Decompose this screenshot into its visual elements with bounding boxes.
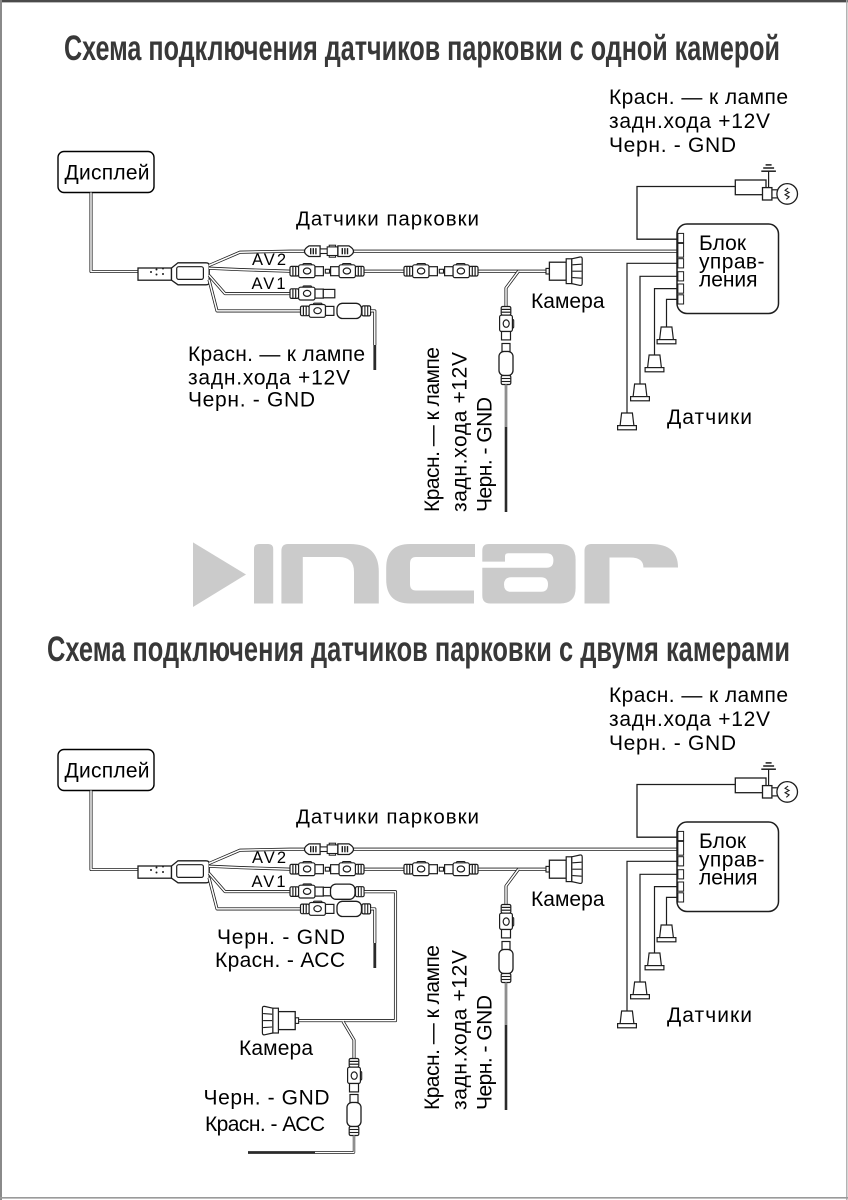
svg-text:Красн. - АСС: Красн. - АСС — [205, 1113, 325, 1136]
svg-text:Красн. — к лампе: Красн. — к лампе — [421, 347, 444, 512]
svg-text:Схема подключения датчиков пар: Схема подключения датчиков парковки с од… — [64, 29, 780, 68]
svg-text:Датчики парковки: Датчики парковки — [296, 208, 479, 231]
svg-text:Красн. — к лампе: Красн. — к лампе — [188, 343, 365, 366]
svg-text:Черн. - GND: Черн. - GND — [204, 1086, 330, 1109]
svg-text:Камера: Камера — [531, 290, 605, 313]
svg-text:задн.хода +12V: задн.хода +12V — [449, 352, 472, 512]
svg-text:задн.хода +12V: задн.хода +12V — [188, 367, 350, 390]
svg-text:Дисплей: Дисплей — [65, 162, 150, 185]
svg-text:AV1: AV1 — [252, 275, 286, 293]
svg-text:Красн. — к лампе: Красн. — к лампе — [609, 86, 788, 109]
svg-text:ления: ления — [699, 269, 758, 292]
svg-text:AV2: AV2 — [252, 251, 286, 269]
svg-text:Черн. - GND: Черн. - GND — [217, 926, 345, 949]
svg-text:задн.хода +12V: задн.хода +12V — [609, 110, 770, 133]
svg-text:Схема подключения датчиков пар: Схема подключения датчиков парковки с дв… — [47, 630, 790, 669]
svg-text:Черн. - GND: Черн. - GND — [609, 134, 736, 157]
svg-text:Камера: Камера — [239, 1037, 313, 1060]
svg-text:Черн. - GND: Черн. - GND — [474, 397, 497, 512]
svg-text:Черн. - GND: Черн. - GND — [188, 389, 315, 412]
svg-text:Красн. - АСС: Красн. - АСС — [215, 949, 345, 972]
